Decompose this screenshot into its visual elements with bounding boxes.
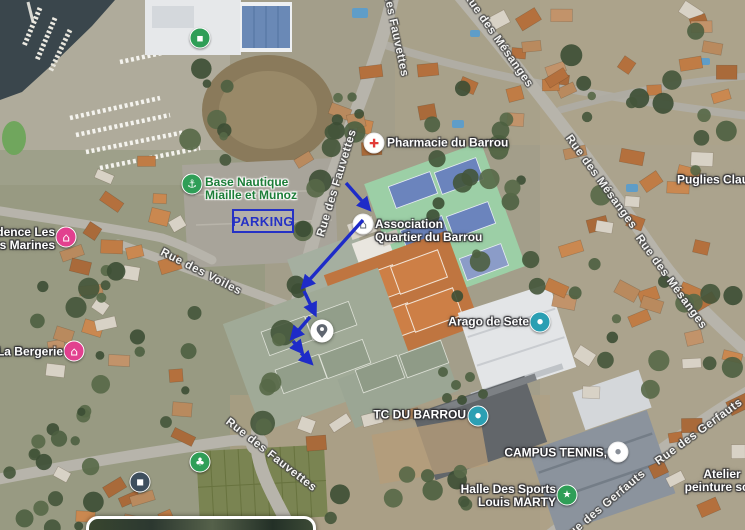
anchor-icon: ⚓	[187, 179, 197, 190]
pharmacie-du-barrou-icon[interactable]: ✚	[364, 133, 385, 154]
atelier-peinture-label-line: peinture scul	[685, 481, 745, 494]
base-nautique-label[interactable]: Base NautiqueMiaille et Munoz	[205, 176, 297, 202]
tc-du-barrou-label[interactable]: TC DU BARROU	[373, 409, 466, 422]
halle-des-sports-louis-marty-icon[interactable]: ★	[557, 485, 578, 506]
residence-les-terres-marines-icon[interactable]: ⌂	[56, 227, 77, 248]
rue-des-fauvettes-bottom-label: Rue des Fauvettes	[223, 416, 319, 494]
arago-de-sete-label[interactable]: Arago de Sete	[448, 316, 529, 329]
campus-tennis-label[interactable]: CAMPUS TENNIS,	[504, 447, 607, 460]
parking-label: PARKING	[232, 214, 294, 229]
atelier-peinture-label[interactable]: Atelierpeinture scul	[685, 468, 745, 494]
pin-glyph	[316, 324, 329, 339]
dot-icon: ●	[615, 449, 621, 456]
base-nautique-label-line: Miaille et Munoz	[205, 189, 297, 202]
dot-icon: ●	[475, 413, 481, 420]
puglies-claudi-label[interactable]: Puglies Claudi	[677, 174, 745, 187]
bus-stop-icon[interactable]: ■	[130, 472, 151, 493]
rue-des-fauvettes-top-label: Rue des Fauvettes	[376, 0, 411, 78]
parking-annotation: PARKING	[232, 209, 294, 233]
base-nautique-icon[interactable]: ⚓	[182, 174, 203, 195]
tc-du-barrou-icon[interactable]: ●	[468, 406, 489, 427]
satellite-map[interactable]: Rue des FauvettesRue des FauvettesRue de…	[0, 0, 745, 530]
pharmacie-du-barrou-label-line: Pharmacie du Barrou	[387, 137, 508, 150]
arago-de-sete-label-line: Arago de Sete	[448, 316, 529, 329]
association-quartier-du-barrou-icon[interactable]: ⌂	[353, 214, 374, 235]
campus-tennis-label-line: CAMPUS TENNIS,	[504, 447, 607, 460]
rue-des-mesanges-low-label: Rue des Mésanges	[633, 233, 709, 332]
rue-des-mesanges-top-label: Rue des Mésanges	[461, 0, 536, 90]
photo-thumbnail[interactable]	[86, 516, 316, 530]
arago-de-sete-icon[interactable]: ●	[530, 312, 551, 333]
campus-tennis-icon[interactable]: ●	[608, 442, 629, 463]
community-garden-icon[interactable]: ♣	[190, 452, 211, 473]
puglies-claudi-label-line: Puglies Claudi	[677, 174, 745, 187]
halle-des-sports-louis-marty-label-line: Louis MARTY	[461, 496, 556, 509]
home-icon: ⌂	[70, 345, 78, 357]
home-icon: ⌂	[62, 231, 70, 243]
residence-les-terres-marines-label[interactable]: Résidence LesTerres Marines	[0, 226, 55, 252]
tc-du-barrou-label-line: TC DU BARROU	[373, 409, 466, 422]
rue-des-voiles-label: Rue des Voiles	[158, 246, 243, 297]
bus-icon: ■	[136, 478, 144, 486]
home-icon: ⌂	[359, 218, 367, 230]
la-bergerie-label-line: La Bergerie	[0, 346, 63, 359]
rue-des-mesanges-mid-label: Rue des Mésanges	[563, 133, 639, 232]
clover-icon: ♣	[195, 457, 205, 468]
boatyard-store-icon[interactable]: ▪	[190, 28, 211, 49]
rue-des-gerfauts-right-label: Rue des Gerfauts	[653, 396, 745, 467]
location-pin-icon[interactable]	[311, 320, 334, 343]
cross-icon: ✚	[369, 137, 379, 149]
dot-icon: ●	[537, 319, 543, 326]
la-bergerie-icon[interactable]: ⌂	[64, 341, 85, 362]
association-quartier-du-barrou-label[interactable]: AssociationQuartier du Barrou	[375, 218, 482, 244]
bag-icon: ▪	[196, 33, 203, 44]
halle-des-sports-louis-marty-label[interactable]: Halle Des SportsLouis MARTY	[461, 483, 556, 509]
la-bergerie-label[interactable]: La Bergerie	[0, 346, 63, 359]
pharmacie-du-barrou-label[interactable]: Pharmacie du Barrou	[387, 137, 508, 150]
association-quartier-du-barrou-label-line: Quartier du Barrou	[375, 231, 482, 244]
residence-les-terres-marines-label-line: Terres Marines	[0, 239, 55, 252]
star-icon: ★	[563, 490, 572, 500]
map-labels-layer: Rue des FauvettesRue des FauvettesRue de…	[0, 0, 745, 530]
